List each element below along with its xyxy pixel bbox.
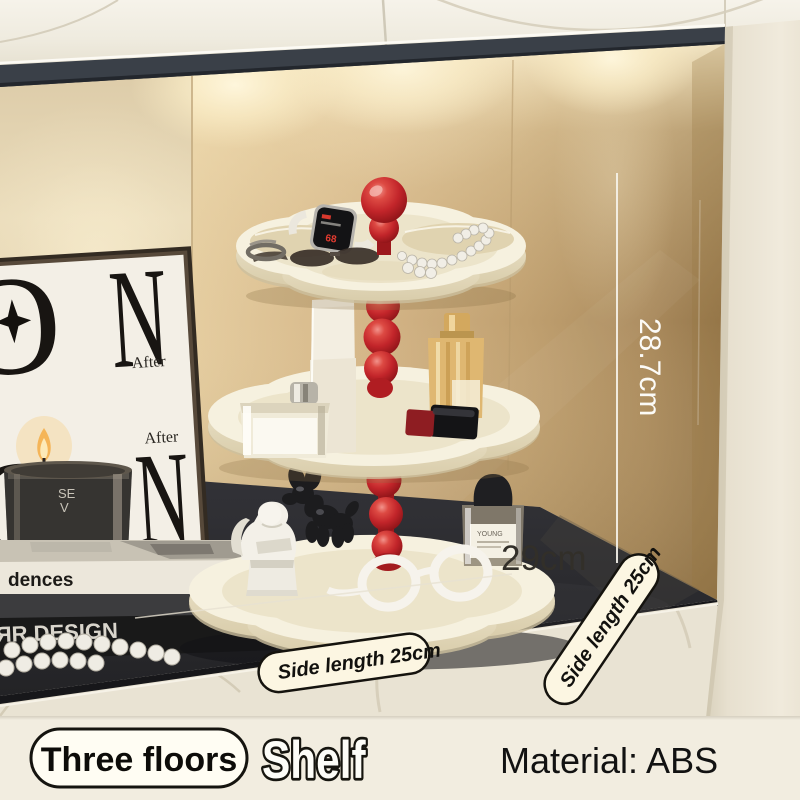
svg-text:Material: ABS: Material: ABS [500,740,718,781]
svg-text:Three floors: Three floors [41,741,237,779]
svg-text:28.7cm: 28.7cm [633,318,666,416]
svg-text:V: V [60,500,69,515]
svg-text:YOUNG: YOUNG [477,531,503,538]
svg-text:N: N [105,237,172,398]
svg-text:dences: dences [8,570,73,591]
svg-text:SE: SE [58,486,76,501]
svg-text:Shelf: Shelf [262,732,367,791]
svg-text:After: After [131,353,166,372]
svg-text:29cm: 29cm [501,539,587,578]
svg-text:68: 68 [325,233,338,246]
